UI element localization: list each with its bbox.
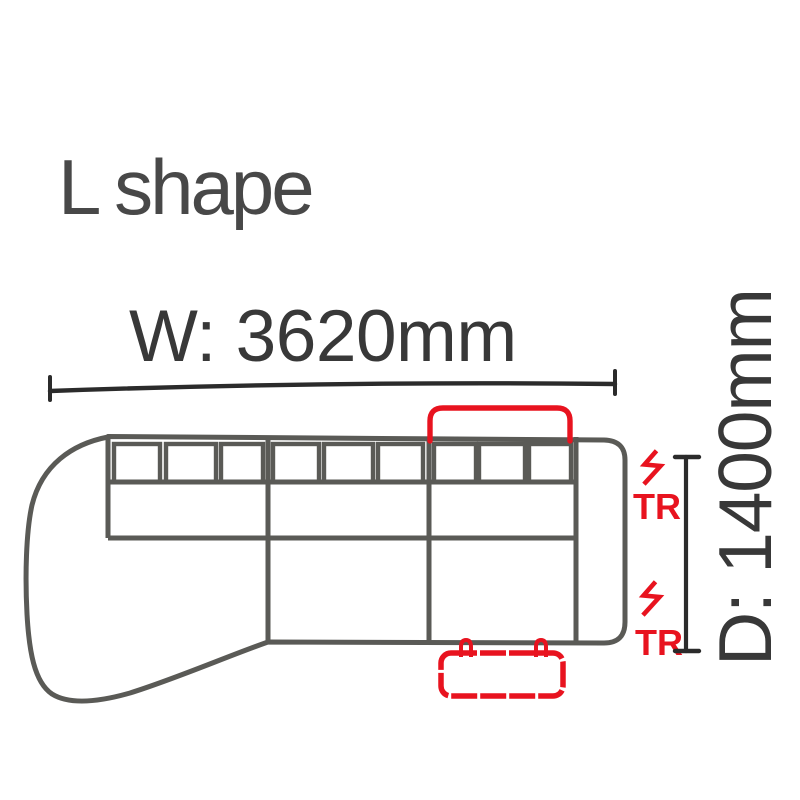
svg-text:D: 1400mm: D: 1400mm (703, 289, 787, 666)
svg-text:TR: TR (635, 622, 683, 663)
svg-text:TR: TR (633, 486, 681, 527)
svg-text:W: 3620mm: W: 3620mm (129, 296, 517, 377)
svg-text:L shape: L shape (58, 143, 312, 231)
